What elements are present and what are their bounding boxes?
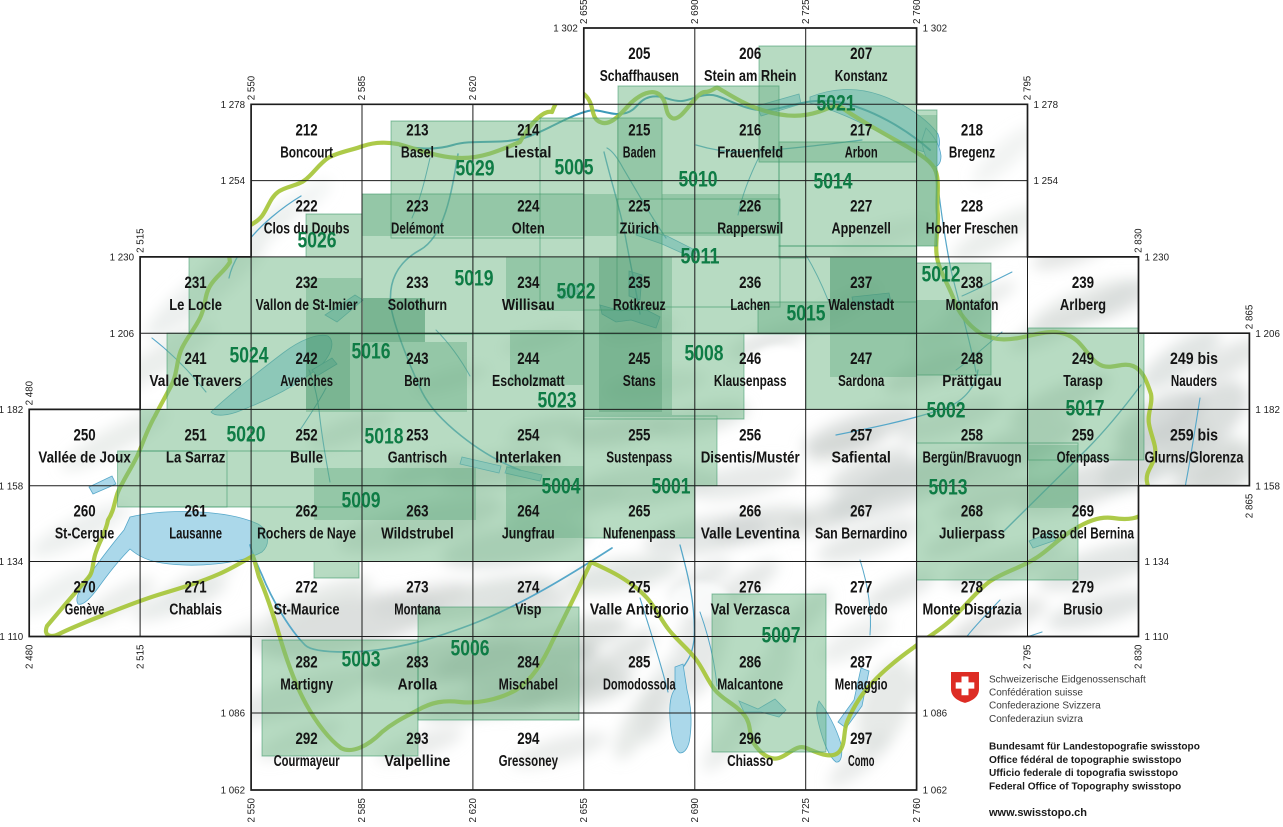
svg-text:261: 261: [185, 502, 207, 521]
svg-text:Mischabel: Mischabel: [499, 677, 558, 694]
svg-text:Tarasp: Tarasp: [1063, 373, 1103, 390]
svg-text:Menaggio: Menaggio: [835, 677, 888, 694]
svg-text:5014: 5014: [814, 169, 854, 194]
svg-text:1 062: 1 062: [221, 786, 246, 797]
svg-text:271: 271: [185, 578, 207, 597]
svg-text:Visp: Visp: [515, 602, 541, 619]
svg-text:242: 242: [296, 349, 318, 368]
svg-text:245: 245: [628, 349, 650, 368]
svg-text:251: 251: [185, 425, 207, 444]
svg-text:Val de Travers: Val de Travers: [149, 373, 241, 390]
svg-text:286: 286: [739, 653, 761, 672]
svg-text:Val Verzasca: Val Verzasca: [711, 602, 791, 619]
svg-text:1 206: 1 206: [110, 329, 135, 340]
svg-text:249: 249: [1072, 349, 1094, 368]
svg-text:5017: 5017: [1066, 396, 1105, 421]
svg-text:Prättigau: Prättigau: [942, 373, 1001, 390]
svg-text:250: 250: [74, 425, 96, 444]
svg-text:5005: 5005: [555, 155, 594, 180]
svg-text:Federal Office of Topography s: Federal Office of Topography swisstopo: [989, 781, 1181, 792]
svg-text:5019: 5019: [455, 266, 494, 291]
svg-text:St-Maurice: St-Maurice: [274, 602, 340, 619]
svg-text:Bundesamt für Landestopografie: Bundesamt für Landestopografie swisstopo: [989, 742, 1200, 753]
svg-text:5020: 5020: [227, 422, 266, 447]
svg-text:Baden: Baden: [623, 144, 656, 161]
svg-text:Confédération suisse: Confédération suisse: [989, 688, 1083, 699]
svg-text:1 086: 1 086: [923, 709, 948, 720]
svg-text:257: 257: [850, 425, 872, 444]
svg-text:226: 226: [739, 197, 761, 216]
svg-text:Disentis/Mustér: Disentis/Mustér: [701, 449, 800, 466]
svg-text:Rotkreuz: Rotkreuz: [613, 297, 666, 314]
svg-text:Basel: Basel: [401, 144, 434, 161]
svg-text:Nufenenpass: Nufenenpass: [603, 526, 676, 543]
svg-text:Solothurn: Solothurn: [388, 297, 447, 314]
svg-text:Schaffhausen: Schaffhausen: [600, 68, 679, 85]
svg-text:Sustenpass: Sustenpass: [606, 449, 672, 466]
svg-text:256: 256: [739, 425, 761, 444]
svg-text:287: 287: [850, 653, 872, 672]
svg-text:Confederazione Svizzera: Confederazione Svizzera: [989, 701, 1101, 712]
svg-text:Rapperswil: Rapperswil: [717, 221, 783, 238]
svg-text:293: 293: [406, 729, 428, 748]
svg-text:2 690: 2 690: [690, 0, 701, 24]
svg-text:Montafon: Montafon: [946, 297, 999, 314]
svg-text:296: 296: [739, 729, 761, 748]
svg-text:Le Locle: Le Locle: [169, 297, 222, 314]
svg-text:243: 243: [406, 349, 428, 368]
svg-text:Chiasso: Chiasso: [727, 753, 773, 770]
svg-text:294: 294: [517, 729, 540, 748]
svg-text:297: 297: [850, 729, 872, 748]
svg-text:Brusio: Brusio: [1063, 602, 1103, 619]
svg-text:214: 214: [517, 120, 540, 139]
svg-text:267: 267: [850, 502, 872, 521]
svg-text:Gressoney: Gressoney: [499, 753, 559, 770]
svg-text:285: 285: [628, 653, 650, 672]
svg-text:Sardona: Sardona: [838, 373, 884, 390]
svg-text:2 795: 2 795: [1023, 644, 1034, 669]
svg-text:Walenstadt: Walenstadt: [828, 297, 894, 314]
svg-text:Chablais: Chablais: [169, 602, 222, 619]
svg-text:259: 259: [1072, 425, 1094, 444]
svg-text:Bulle: Bulle: [290, 449, 323, 466]
svg-text:2 480: 2 480: [24, 644, 35, 669]
svg-text:2 585: 2 585: [357, 797, 368, 822]
svg-text:2 585: 2 585: [357, 75, 368, 100]
svg-text:5016: 5016: [352, 339, 391, 364]
svg-text:1 230: 1 230: [1145, 253, 1170, 264]
svg-text:Courmayeur: Courmayeur: [274, 753, 340, 770]
svg-text:235: 235: [628, 273, 650, 292]
svg-text:265: 265: [628, 502, 650, 521]
svg-text:263: 263: [406, 502, 428, 521]
svg-text:246: 246: [739, 349, 761, 368]
svg-text:5002: 5002: [927, 398, 966, 423]
svg-text:231: 231: [185, 273, 207, 292]
svg-text:260: 260: [74, 502, 96, 521]
svg-text:1 182: 1 182: [1255, 405, 1280, 416]
svg-text:2 725: 2 725: [801, 797, 812, 822]
svg-text:Valle Antigorio: Valle Antigorio: [590, 602, 689, 619]
svg-text:1 278: 1 278: [1034, 100, 1059, 111]
svg-text:262: 262: [296, 502, 318, 521]
svg-text:259 bis: 259 bis: [1170, 425, 1218, 444]
svg-text:258: 258: [961, 425, 983, 444]
svg-text:2 865: 2 865: [1245, 493, 1256, 518]
svg-text:Delémont: Delémont: [391, 221, 444, 238]
svg-text:2 760: 2 760: [912, 0, 923, 24]
svg-text:292: 292: [296, 729, 318, 748]
svg-text:2 865: 2 865: [1245, 304, 1256, 329]
svg-text:5026: 5026: [298, 228, 337, 253]
svg-text:Olten: Olten: [512, 221, 545, 238]
svg-text:Interlaken: Interlaken: [495, 449, 561, 466]
svg-text:254: 254: [517, 425, 540, 444]
svg-text:San Bernardino: San Bernardino: [815, 526, 907, 543]
svg-text:232: 232: [296, 273, 318, 292]
svg-text:268: 268: [961, 502, 983, 521]
svg-text:222: 222: [296, 197, 318, 216]
svg-text:244: 244: [517, 349, 540, 368]
svg-text:247: 247: [850, 349, 872, 368]
svg-text:5015: 5015: [787, 301, 826, 326]
svg-text:252: 252: [296, 425, 318, 444]
svg-text:Gantrisch: Gantrisch: [388, 449, 447, 466]
svg-text:253: 253: [406, 425, 428, 444]
svg-text:Bregenz: Bregenz: [949, 144, 995, 161]
svg-text:275: 275: [628, 578, 650, 597]
svg-text:264: 264: [517, 502, 540, 521]
svg-text:273: 273: [406, 578, 428, 597]
svg-text:255: 255: [628, 425, 650, 444]
svg-text:Ufficio federale di topografia: Ufficio federale di topografia swisstopo: [989, 768, 1178, 779]
svg-text:213: 213: [406, 120, 428, 139]
svg-text:5013: 5013: [929, 475, 968, 500]
svg-text:Bern: Bern: [404, 373, 430, 390]
svg-text:Montana: Montana: [394, 602, 440, 619]
svg-text:Arolla: Arolla: [398, 677, 438, 694]
svg-text:1 110: 1 110: [0, 632, 24, 643]
svg-text:2 620: 2 620: [468, 797, 479, 822]
svg-text:Office fédéral de topographie: Office fédéral de topographie swisstopo: [989, 755, 1181, 766]
svg-text:216: 216: [739, 120, 761, 139]
svg-text:2 760: 2 760: [912, 797, 923, 822]
svg-text:Schweizerische Eidgenossenscha: Schweizerische Eidgenossenschaft: [989, 675, 1146, 686]
svg-text:Roveredo: Roveredo: [835, 602, 888, 619]
svg-text:La Sarraz: La Sarraz: [166, 449, 226, 466]
svg-text:2 830: 2 830: [1134, 228, 1145, 253]
svg-text:269: 269: [1072, 502, 1094, 521]
svg-text:1 110: 1 110: [1145, 632, 1169, 643]
svg-text:2 725: 2 725: [801, 0, 812, 24]
svg-text:Ofenpass: Ofenpass: [1057, 449, 1110, 466]
svg-text:Liestal: Liestal: [505, 144, 551, 161]
svg-text:Lausanne: Lausanne: [169, 526, 222, 543]
svg-text:241: 241: [185, 349, 207, 368]
svg-text:5011: 5011: [681, 244, 720, 269]
svg-text:2 690: 2 690: [690, 797, 701, 822]
svg-text:Arbon: Arbon: [845, 144, 878, 161]
svg-text:2 480: 2 480: [24, 380, 35, 405]
svg-text:206: 206: [739, 44, 761, 63]
svg-text:5001: 5001: [652, 474, 691, 499]
svg-text:5008: 5008: [685, 341, 724, 366]
svg-text:Bergün/Bravuogn: Bergün/Bravuogn: [923, 449, 1022, 466]
svg-text:Lachen: Lachen: [730, 297, 770, 314]
svg-text:2 515: 2 515: [135, 644, 146, 669]
svg-text:5010: 5010: [679, 167, 718, 192]
svg-text:Martigny: Martigny: [280, 677, 333, 694]
svg-text:215: 215: [628, 120, 650, 139]
svg-text:Hoher Freschen: Hoher Freschen: [926, 221, 1018, 238]
svg-text:5012: 5012: [922, 262, 961, 287]
svg-text:1 302: 1 302: [923, 24, 948, 35]
svg-text:218: 218: [961, 120, 983, 139]
svg-text:274: 274: [517, 578, 540, 597]
svg-text:Frauenfeld: Frauenfeld: [717, 144, 783, 161]
svg-text:Monte Disgrazia: Monte Disgrazia: [923, 602, 1022, 619]
svg-text:Valle Leventina: Valle Leventina: [701, 526, 800, 543]
svg-text:225: 225: [628, 197, 650, 216]
svg-text:Domodossola: Domodossola: [603, 677, 676, 694]
svg-text:2 620: 2 620: [468, 75, 479, 100]
svg-text:2 830: 2 830: [1134, 644, 1145, 669]
svg-text:5003: 5003: [342, 647, 381, 672]
svg-text:Vallée de Joux: Vallée de Joux: [38, 449, 131, 466]
svg-text:228: 228: [961, 197, 983, 216]
svg-text:2 550: 2 550: [246, 75, 257, 100]
svg-text:1 182: 1 182: [0, 405, 23, 416]
svg-text:Julierpass: Julierpass: [939, 526, 1005, 543]
svg-text:Genève: Genève: [65, 602, 105, 619]
svg-text:266: 266: [739, 502, 761, 521]
svg-text:207: 207: [850, 44, 872, 63]
svg-text:5024: 5024: [230, 343, 270, 368]
svg-text:282: 282: [296, 653, 318, 672]
svg-text:1 206: 1 206: [1255, 329, 1280, 340]
svg-text:5023: 5023: [538, 388, 577, 413]
svg-text:2 550: 2 550: [246, 797, 257, 822]
svg-text:1 062: 1 062: [923, 786, 948, 797]
svg-text:Zürich: Zürich: [620, 221, 660, 238]
svg-text:5022: 5022: [557, 279, 596, 304]
svg-text:212: 212: [296, 120, 318, 139]
svg-text:283: 283: [406, 653, 428, 672]
svg-text:5029: 5029: [456, 156, 495, 181]
svg-text:Avenches: Avenches: [280, 373, 333, 390]
svg-text:Appenzell: Appenzell: [832, 221, 891, 238]
svg-text:1 134: 1 134: [0, 557, 24, 568]
svg-text:205: 205: [628, 44, 650, 63]
svg-text:Vallon de St-Imier: Vallon de St-Imier: [256, 297, 358, 314]
svg-text:Stans: Stans: [623, 373, 656, 390]
svg-text:217: 217: [850, 120, 872, 139]
svg-text:Passo del Bernina: Passo del Bernina: [1032, 526, 1134, 543]
svg-text:5006: 5006: [451, 636, 490, 661]
svg-text:278: 278: [961, 578, 983, 597]
svg-text:249 bis: 249 bis: [1170, 349, 1218, 368]
svg-text:5009: 5009: [342, 488, 381, 513]
svg-text:1 086: 1 086: [221, 709, 246, 720]
svg-text:Como: Como: [848, 753, 874, 770]
svg-text:272: 272: [296, 578, 318, 597]
svg-text:279: 279: [1072, 578, 1094, 597]
svg-text:Nauders: Nauders: [1171, 373, 1217, 390]
svg-text:276: 276: [739, 578, 761, 597]
svg-text:237: 237: [850, 273, 872, 292]
svg-text:www.swisstopo.ch: www.swisstopo.ch: [988, 807, 1087, 819]
svg-text:5018: 5018: [365, 424, 404, 449]
svg-text:Safiental: Safiental: [832, 449, 891, 466]
svg-text:233: 233: [406, 273, 428, 292]
svg-text:Malcantone: Malcantone: [717, 677, 783, 694]
svg-text:Arlberg: Arlberg: [1060, 297, 1106, 314]
svg-text:238: 238: [961, 273, 983, 292]
svg-text:Willisau: Willisau: [502, 297, 555, 314]
svg-text:223: 223: [406, 197, 428, 216]
svg-text:Wildstrubel: Wildstrubel: [381, 526, 454, 543]
svg-text:236: 236: [739, 273, 761, 292]
svg-text:St-Cergue: St-Cergue: [55, 526, 115, 543]
svg-text:5007: 5007: [762, 623, 801, 648]
svg-text:1 230: 1 230: [110, 253, 135, 264]
svg-text:277: 277: [850, 578, 872, 597]
svg-text:5004: 5004: [542, 474, 582, 499]
svg-text:2 515: 2 515: [135, 228, 146, 253]
svg-text:2 655: 2 655: [579, 0, 590, 24]
svg-text:1 158: 1 158: [1255, 481, 1280, 492]
svg-text:284: 284: [517, 653, 540, 672]
svg-text:239: 239: [1072, 273, 1094, 292]
svg-text:Rochers de Naye: Rochers de Naye: [257, 526, 356, 543]
svg-text:227: 227: [850, 197, 872, 216]
svg-text:1 278: 1 278: [221, 100, 246, 111]
svg-text:Glurns/Glorenza: Glurns/Glorenza: [1145, 449, 1244, 466]
svg-text:Klausenpass: Klausenpass: [714, 373, 787, 390]
svg-text:248: 248: [961, 349, 983, 368]
svg-text:Confederaziun svizra: Confederaziun svizra: [989, 714, 1083, 725]
svg-text:1 254: 1 254: [1034, 176, 1059, 187]
svg-text:1 254: 1 254: [221, 176, 246, 187]
svg-text:2 795: 2 795: [1023, 75, 1034, 100]
svg-text:Boncourt: Boncourt: [280, 144, 333, 161]
svg-text:5021: 5021: [817, 91, 856, 116]
svg-text:270: 270: [74, 578, 96, 597]
svg-text:1 158: 1 158: [0, 481, 24, 492]
svg-text:Stein am Rhein: Stein am Rhein: [704, 68, 796, 85]
svg-text:Valpelline: Valpelline: [384, 753, 450, 770]
svg-text:234: 234: [517, 273, 540, 292]
svg-text:2 655: 2 655: [579, 797, 590, 822]
svg-text:224: 224: [517, 197, 540, 216]
svg-text:Konstanz: Konstanz: [835, 68, 888, 85]
svg-text:1 134: 1 134: [1145, 557, 1170, 568]
svg-text:1 302: 1 302: [553, 24, 578, 35]
svg-text:Jungfrau: Jungfrau: [502, 526, 555, 543]
